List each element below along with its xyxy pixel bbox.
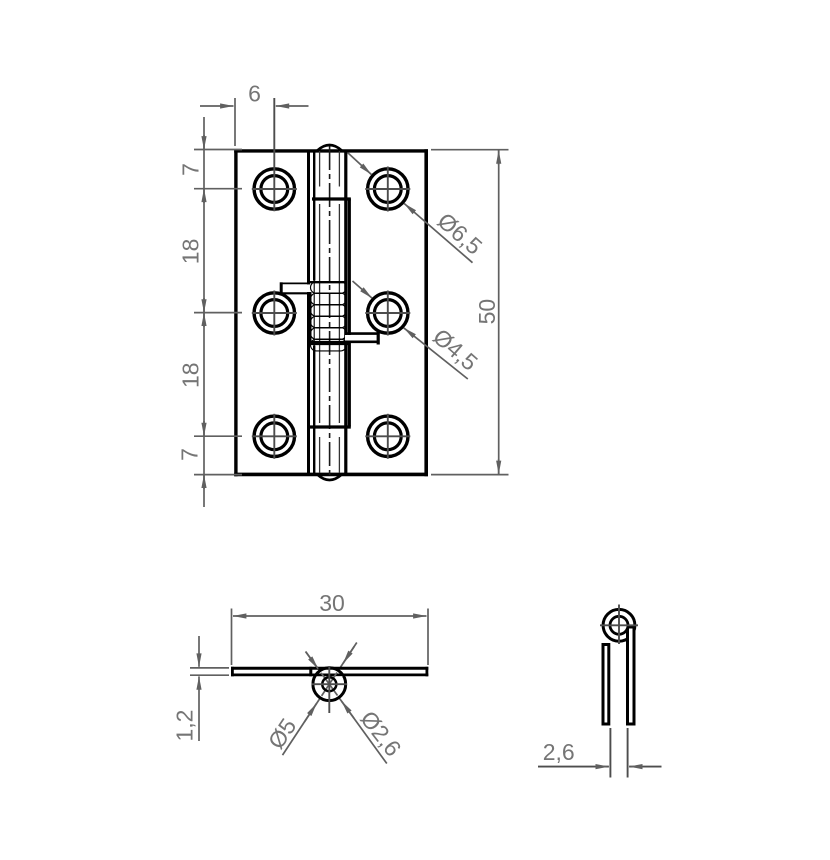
svg-text:18: 18 xyxy=(178,362,204,388)
svg-text:30: 30 xyxy=(319,590,345,616)
svg-text:7: 7 xyxy=(177,448,203,461)
svg-text:18: 18 xyxy=(178,239,204,265)
svg-text:1,2: 1,2 xyxy=(172,710,198,742)
svg-text:50: 50 xyxy=(474,299,500,325)
svg-text:7: 7 xyxy=(178,163,204,176)
svg-text:6: 6 xyxy=(248,81,261,107)
svg-text:2,6: 2,6 xyxy=(543,739,575,765)
